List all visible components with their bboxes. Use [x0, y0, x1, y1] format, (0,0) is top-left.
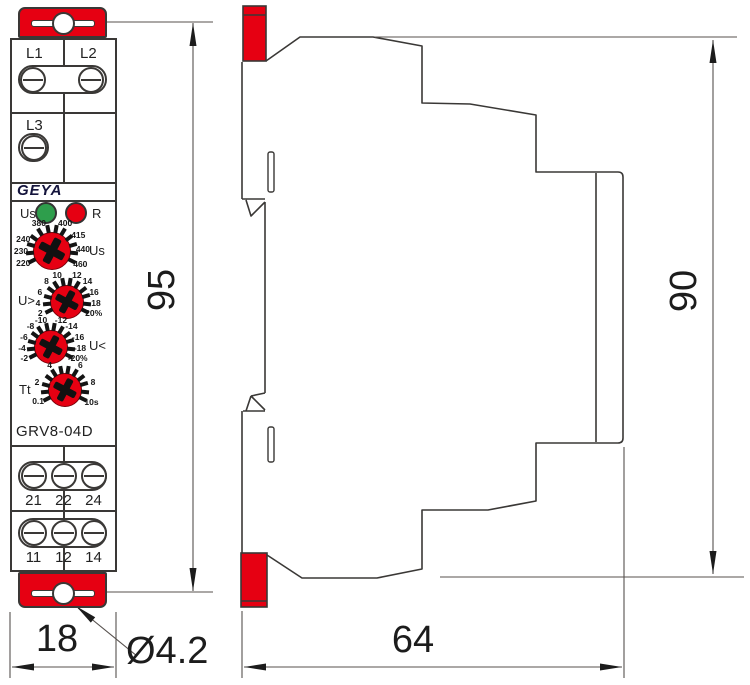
dial-scale-label: -14 — [65, 321, 77, 331]
dimension-lines — [10, 22, 744, 678]
dimension-hole-diameter: Ø4.2 — [126, 630, 226, 673]
dial-scale-label: 440 — [76, 244, 90, 254]
mounting-hole — [52, 12, 75, 35]
side-profile-outline — [242, 37, 623, 578]
dial-scale-label: 8 — [91, 377, 96, 387]
terminal-screw-14 — [81, 520, 107, 546]
dial-scale-label: 0.1 — [32, 396, 44, 406]
terminal-screw-24 — [81, 463, 107, 489]
dial-scale-label: 20% — [85, 308, 102, 318]
terminal-number: 21 — [21, 492, 47, 509]
dial-scale-label: -6 — [20, 332, 28, 342]
split-line — [63, 112, 65, 182]
dial-scale-label: -2 — [21, 353, 29, 363]
dial-tick — [83, 301, 91, 306]
dial-scale-label: 14 — [83, 276, 92, 286]
side-mounting-tab-bottom — [241, 553, 267, 607]
dial-scale-label: 16 — [89, 287, 98, 297]
dial-scale-label: -18 — [74, 343, 86, 353]
dial-tick — [58, 366, 63, 375]
terminal-label-l3: L3 — [26, 117, 43, 134]
terminal-number: 11 — [21, 549, 47, 566]
mounting-tab-bottom — [18, 572, 107, 608]
dimension-front-width: 18 — [17, 618, 97, 661]
dial-scale-label: 6 — [78, 360, 83, 370]
dial-name-2: U> — [18, 293, 35, 308]
dial-scale-label: 230 — [14, 246, 28, 256]
terminal-screw-22 — [51, 463, 77, 489]
terminal-screw-11 — [21, 520, 47, 546]
relay-dimension-drawing: 95 90 18 64 Ø4.2 L1 L2 L3 GEYA Us — [0, 0, 750, 685]
dial-scale-label: -16 — [72, 332, 84, 342]
dimension-side-height: 90 — [656, 261, 712, 321]
side-slot-top — [268, 152, 274, 192]
dial-name-1: Us — [89, 243, 105, 258]
dial-tick — [58, 325, 66, 334]
split-line — [63, 445, 65, 461]
dial-scale-label: -8 — [27, 321, 35, 331]
dial-scale-label: 4 — [47, 360, 52, 370]
dial-tick — [45, 308, 54, 315]
divider — [12, 200, 115, 202]
terminal-number: 22 — [51, 492, 77, 509]
terminal-screw-21 — [21, 463, 47, 489]
dial-tick — [76, 374, 85, 382]
terminal-number: 14 — [81, 549, 107, 566]
terminal-number: 12 — [51, 549, 77, 566]
dimension-arrowheads — [12, 23, 717, 671]
terminal-label-l1: L1 — [26, 45, 43, 62]
dial-tick — [74, 280, 82, 289]
dimension-front-height: 95 — [134, 260, 190, 320]
dial-scale-label: 8 — [44, 276, 49, 286]
dial-scale-label: 18 — [91, 298, 100, 308]
dial-tick — [62, 331, 71, 339]
dial-scale-label: 2 — [35, 377, 40, 387]
terminal-screw-l3 — [21, 135, 47, 161]
front-view: L1 L2 L3 GEYA Us R 220230240380400415440… — [10, 38, 117, 572]
brand-logo: GEYA — [17, 182, 62, 199]
dial-tick — [78, 286, 87, 294]
dial-scale-label: -10 — [35, 315, 47, 325]
dial-scale-label: 380 — [32, 218, 46, 228]
dial-scale-label: -4 — [18, 343, 26, 353]
mounting-hole — [52, 582, 75, 605]
dial-scale-label: 220 — [16, 258, 30, 268]
mounting-tab-top — [18, 7, 107, 38]
dial-tick — [29, 353, 38, 360]
split-line — [63, 40, 65, 67]
dial-name-4: Tt — [19, 382, 31, 397]
dimension-side-width: 64 — [373, 619, 453, 662]
terminal-screw-12 — [51, 520, 77, 546]
split-line — [63, 93, 65, 112]
side-slot-bottom — [268, 427, 274, 462]
dial-scale-label: 240 — [16, 234, 30, 244]
dial-tick — [81, 389, 89, 394]
dial-scale-label: 10s — [84, 397, 98, 407]
terminal-number: 24 — [81, 492, 107, 509]
terminal-screw-l2 — [78, 67, 104, 93]
din-clip-notches — [242, 62, 265, 553]
dial-scale-label: 415 — [71, 230, 85, 240]
model-number: GRV8-04D — [16, 423, 93, 440]
terminal-screw-l1 — [20, 67, 46, 93]
dial-scale-label: 460 — [73, 259, 87, 269]
dial-scale-label: 4 — [36, 298, 41, 308]
dial-scale-label: 10 — [52, 270, 61, 280]
dial-scale-label: 6 — [38, 287, 43, 297]
dial-scale-label: 400 — [58, 218, 72, 228]
side-mounting-tab-top — [243, 6, 266, 61]
terminal-label-l2: L2 — [80, 45, 97, 62]
led-r-label: R — [92, 206, 101, 221]
dial-tick — [80, 381, 89, 387]
dial-name-3: U< — [89, 338, 106, 353]
dial-scale-label: 12 — [72, 270, 81, 280]
